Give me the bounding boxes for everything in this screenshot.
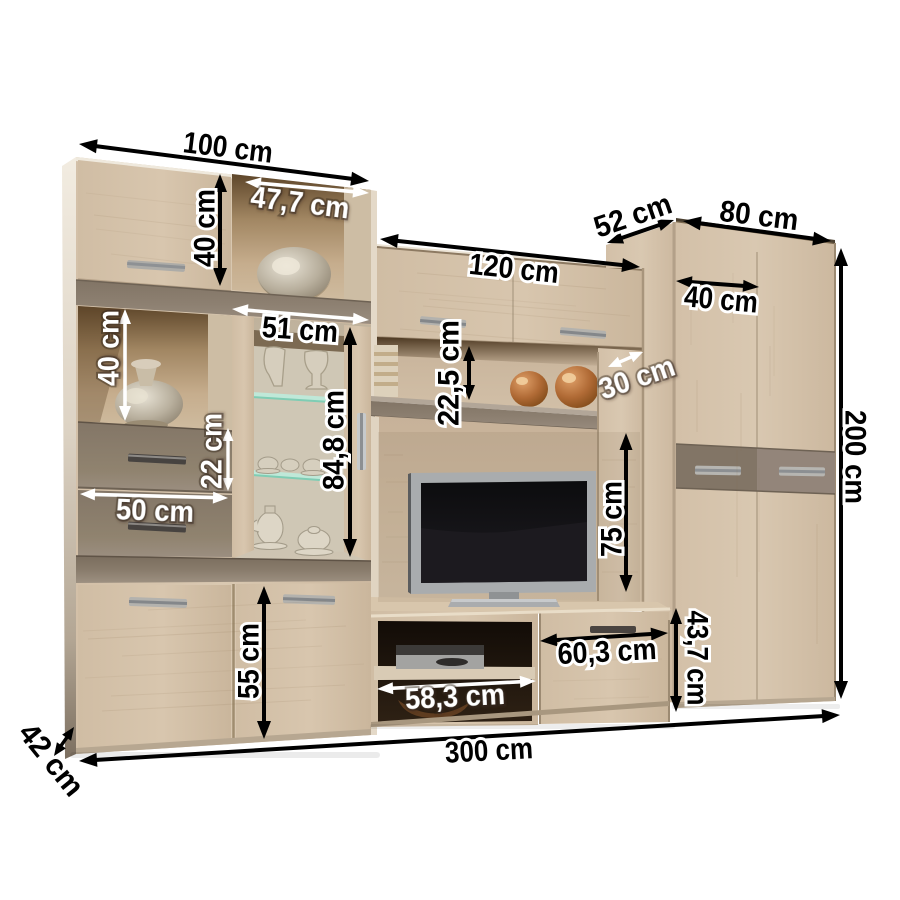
- svg-text:300 cm: 300 cm: [444, 732, 534, 770]
- svg-text:58,3 cm: 58,3 cm: [404, 678, 506, 716]
- svg-text:55 cm: 55 cm: [233, 623, 266, 699]
- svg-text:40 cm: 40 cm: [683, 280, 760, 319]
- svg-text:51 cm: 51 cm: [261, 311, 339, 349]
- svg-text:75 cm: 75 cm: [596, 481, 629, 557]
- svg-text:50 cm: 50 cm: [115, 493, 194, 529]
- svg-text:60,3 cm: 60,3 cm: [557, 633, 658, 671]
- svg-text:40 cm: 40 cm: [93, 310, 126, 386]
- svg-text:100 cm: 100 cm: [181, 126, 274, 170]
- svg-text:200 cm: 200 cm: [839, 410, 872, 504]
- svg-text:22 cm: 22 cm: [196, 413, 229, 489]
- svg-text:40 cm: 40 cm: [189, 189, 222, 267]
- svg-text:43,7 cm: 43,7 cm: [681, 611, 714, 706]
- svg-text:84,8 cm: 84,8 cm: [318, 390, 351, 490]
- svg-text:22,5 cm: 22,5 cm: [433, 320, 466, 426]
